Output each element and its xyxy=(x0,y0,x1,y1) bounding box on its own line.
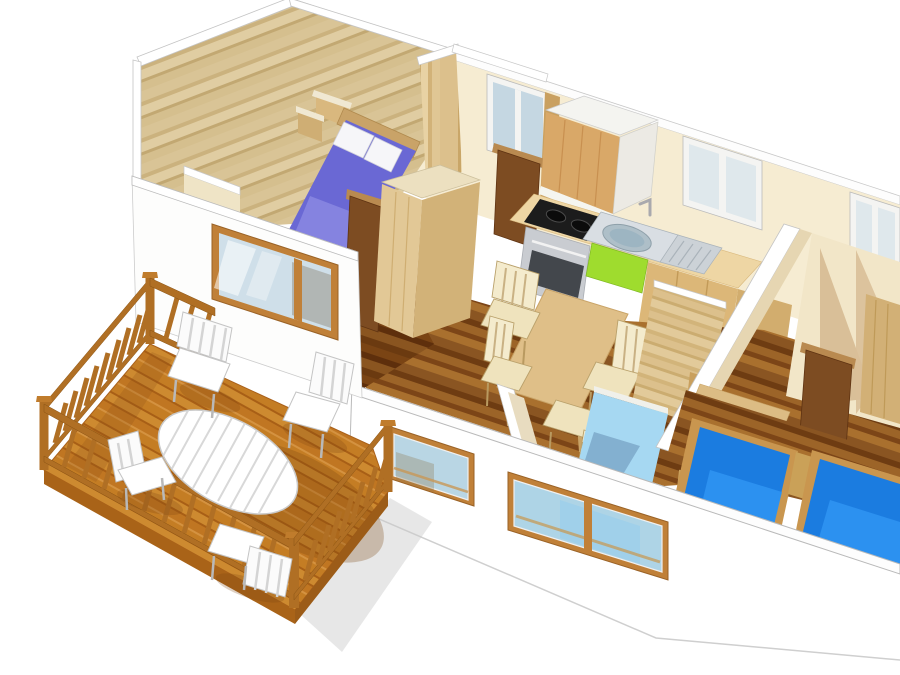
bathroom-wood-wall xyxy=(420,49,462,184)
floorplan-svg xyxy=(0,0,900,675)
right-end-wood-panel xyxy=(860,294,900,424)
right-window-mullion xyxy=(872,205,878,257)
post-cap-w xyxy=(36,396,52,402)
gable-corner-trim xyxy=(133,60,141,182)
window-mullion xyxy=(584,500,592,552)
window-mullion xyxy=(294,258,302,322)
floorplan-render xyxy=(0,0,900,675)
bathroom-window-mullion xyxy=(515,89,521,155)
kitchen-window-mullion xyxy=(719,153,726,213)
post-cap-e xyxy=(380,420,396,426)
wardrobe-side xyxy=(413,182,480,338)
post-cap-n xyxy=(142,272,158,278)
